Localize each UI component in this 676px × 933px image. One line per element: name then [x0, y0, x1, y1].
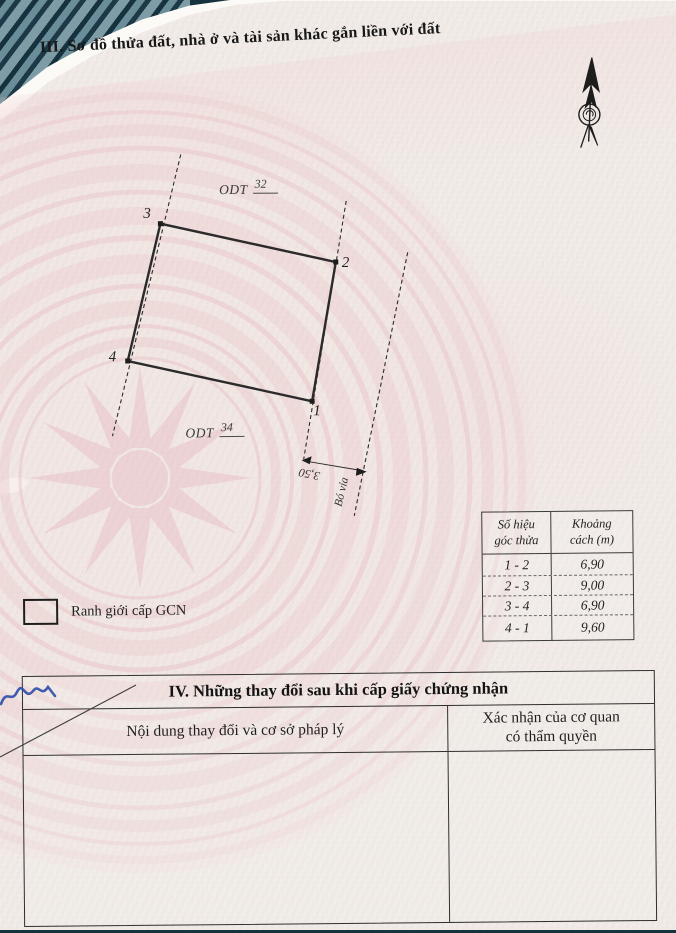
legend: Ranh giới cấp GCN	[23, 597, 186, 625]
dim-arrowhead-right	[356, 468, 367, 476]
dist-4-1: 9,60	[552, 615, 633, 640]
edge-3-4: 3 - 4	[483, 596, 552, 616]
odt-34-number: 34	[219, 420, 244, 437]
odt-34-type: ODT	[185, 425, 214, 441]
changes-table-body	[24, 750, 657, 926]
edge-2-3: 2 - 3	[483, 576, 552, 596]
vertex-4-dot	[125, 358, 130, 363]
header-col1-l2: góc thửa	[494, 533, 538, 549]
boundary-symbol	[23, 599, 58, 625]
edge-1-2: 1 - 2	[483, 554, 552, 576]
dist-3-4: 6,90	[552, 595, 633, 615]
vertex-2-label: 2	[342, 255, 350, 272]
table-row: 3 - 4 6,90	[483, 595, 633, 616]
changes-table: IV. Những thay đổi sau khi cấp giấy chứn…	[22, 670, 657, 927]
curb-dashed-line	[352, 252, 411, 516]
adjacent-parcel-odt-32: ODT 32	[219, 182, 278, 200]
odt-32-type: ODT	[219, 182, 248, 198]
changes-body-left-cell	[24, 752, 451, 926]
vertex-3-label: 3	[143, 206, 151, 223]
distance-table-header: Số hiệu góc thửa Khoảng cách (m)	[482, 511, 632, 554]
header-distance: Khoảng cách (m)	[551, 511, 632, 553]
table-row: 1 - 2 6,90	[483, 553, 633, 576]
odt-32-number: 32	[252, 177, 277, 194]
changes-table-header: Nội dung thay đổi và cơ sở pháp lý Xác n…	[23, 704, 654, 756]
header-col2-l1: Khoảng	[572, 516, 612, 532]
north-arrow-icon	[578, 57, 600, 147]
vertex-1-label: 1	[313, 403, 321, 420]
changes-body-right-cell	[449, 750, 657, 922]
dist-2-3: 9,00	[552, 575, 633, 595]
header-col2-l2: cách (m)	[570, 532, 614, 548]
header-col1-l1: Số hiệu	[498, 517, 535, 533]
vertex-4-label: 4	[109, 349, 117, 366]
changes-col-content: Nội dung thay đổi và cơ sở pháp lý	[23, 706, 448, 755]
dim-arrowhead-left	[302, 456, 312, 464]
adjacent-parcel-odt-34: ODT 34	[185, 425, 244, 443]
dashed-boundary-line-34	[110, 155, 184, 437]
table-row: 2 - 3 9,00	[483, 575, 633, 596]
dist-1-2: 6,90	[552, 553, 633, 575]
confirmation-l2: có thẩm quyền	[506, 727, 597, 746]
distance-table: Số hiệu góc thửa Khoảng cách (m) 1 - 2 6…	[481, 510, 634, 641]
parcel-boundary	[126, 222, 337, 403]
page-content: III. Sơ đồ thửa đất, nhà ở và tài sản kh…	[0, 0, 676, 933]
changes-col-confirmation: Xác nhận của cơ quan có thẩm quyền	[448, 704, 654, 751]
header-corner-id: Số hiệu góc thửa	[482, 512, 551, 554]
vertex-3-dot	[158, 221, 163, 226]
vertex-2-dot	[333, 259, 338, 264]
legend-label: Ranh giới cấp GCN	[71, 602, 186, 620]
table-row: 4 - 1 9,60	[483, 615, 633, 640]
edge-4-1: 4 - 1	[483, 616, 552, 641]
confirmation-l1: Xác nhận của cơ quan	[482, 709, 619, 729]
scanned-certificate-page: { "document": { "section3_title": "III. …	[0, 0, 676, 930]
